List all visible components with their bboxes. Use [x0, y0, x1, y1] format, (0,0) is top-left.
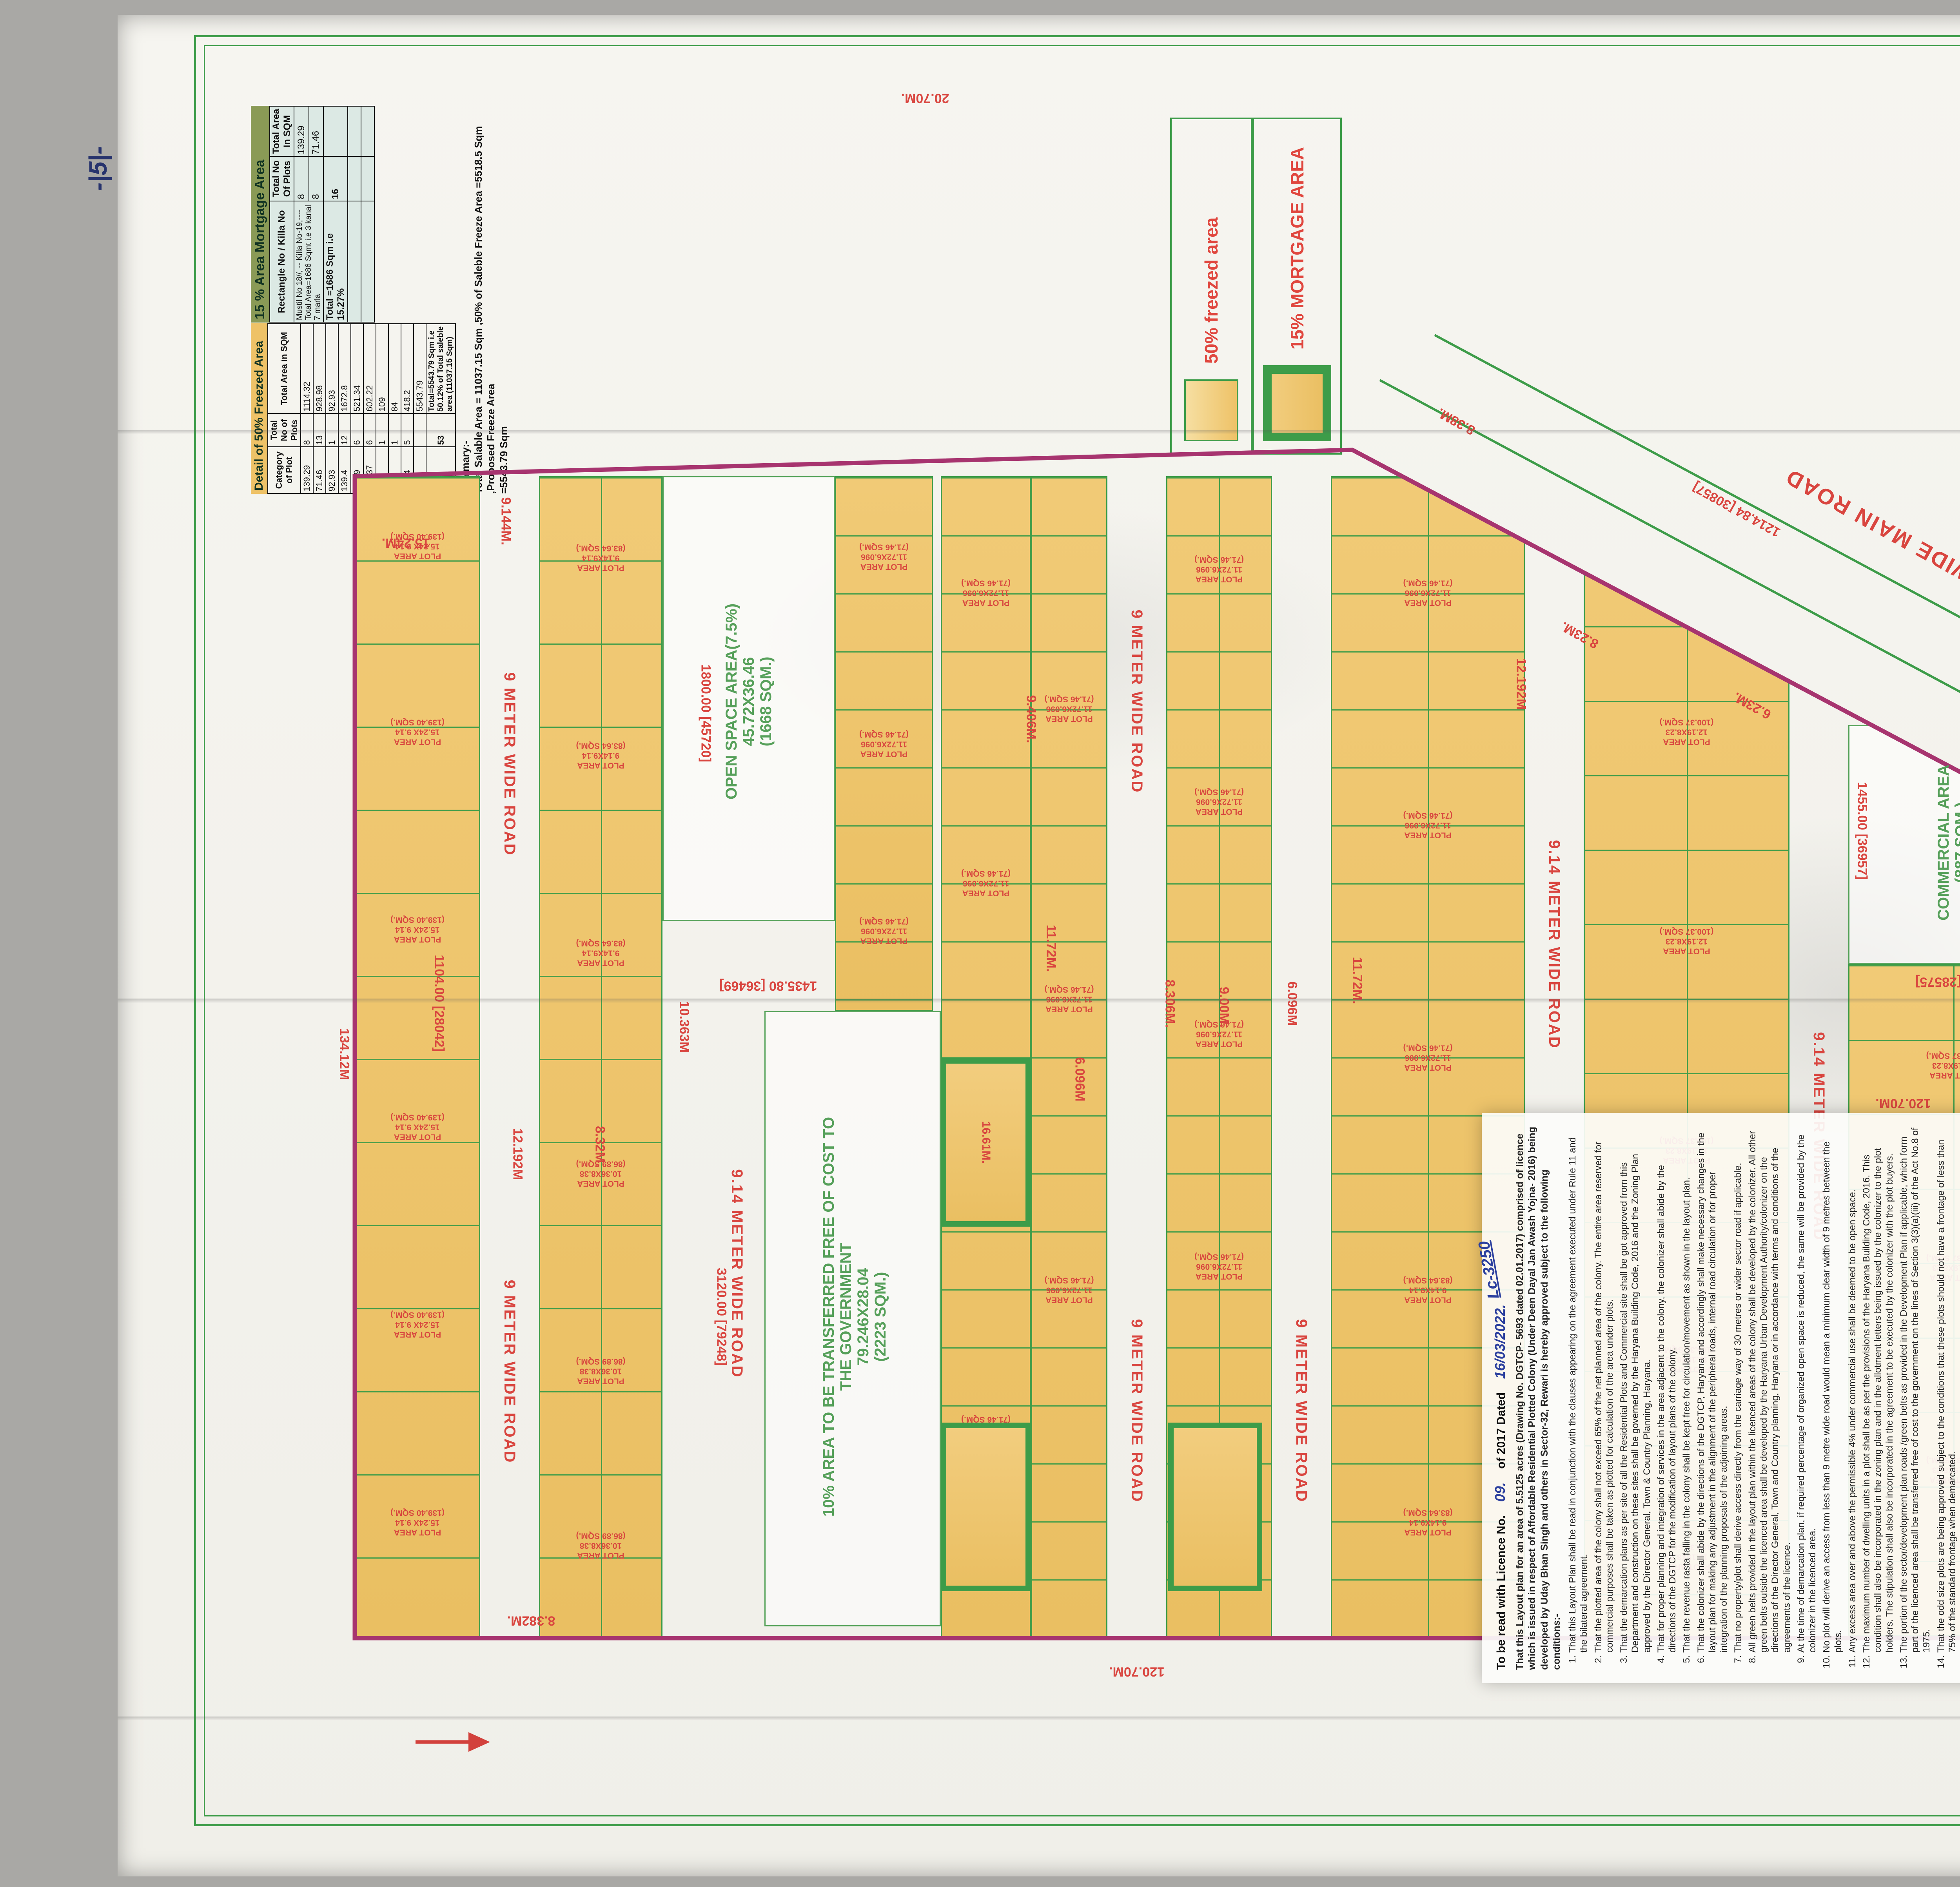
note-condition: That for proper planning and integration… — [1655, 1126, 1679, 1653]
note-condition: The portion of the sector/development pl… — [1898, 1126, 1933, 1653]
note-condition: The maximum number of dwelling units in … — [1861, 1126, 1895, 1653]
notes-block: To be read with Licence No. 09. of 2017 … — [1482, 1113, 1960, 1683]
licence-no-handwritten: 09. — [1492, 1482, 1508, 1502]
note-condition: That the colonizer shall abide by the di… — [1695, 1126, 1730, 1653]
licence-date-handwritten: 16/03/2022. — [1492, 1304, 1508, 1379]
note-condition: That no property/plot shall derive acces… — [1732, 1126, 1744, 1653]
note-condition: At the time of demarcation plan, if requ… — [1795, 1126, 1818, 1653]
note-condition: All green belts provided in the layout p… — [1747, 1126, 1793, 1653]
note-condition: Any excess area over and above the permi… — [1847, 1126, 1858, 1653]
licence-line: To be read with Licence No. 09. of 2017 … — [1492, 1126, 1508, 1670]
note-condition: That the demarcation plans as per site o… — [1618, 1126, 1653, 1653]
note-condition: No plot will derive an access from less … — [1821, 1126, 1844, 1653]
note-condition: That the revenue rasta falling in the co… — [1681, 1126, 1692, 1653]
notes-intro: That this Layout plan for an area of 5.5… — [1514, 1126, 1563, 1670]
scanned-layout-plan: -|5|- Detail of 50% Freezed Area Categor… — [0, 0, 1960, 1887]
note-condition: That the odd size plots are being approv… — [1935, 1126, 1958, 1653]
note-condition: That this Layout Plan shall be read in c… — [1567, 1126, 1590, 1653]
note-condition: That the plotted area of the colony shal… — [1593, 1126, 1616, 1653]
notes-conditions-list: That this Layout Plan shall be read in c… — [1567, 1126, 1960, 1653]
